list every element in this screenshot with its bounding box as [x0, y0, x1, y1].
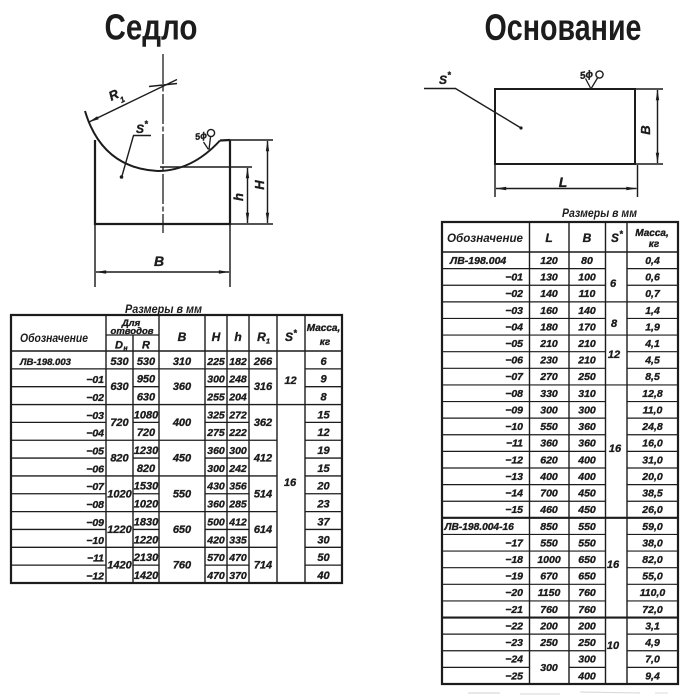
svg-text:200: 200 [539, 620, 558, 632]
svg-text:S: S [285, 330, 293, 344]
svg-text:230: 230 [539, 355, 558, 367]
svg-text:420: 420 [206, 534, 225, 546]
svg-text:400: 400 [577, 471, 596, 483]
svg-text:59,0: 59,0 [642, 521, 663, 533]
svg-text:−07: −07 [86, 481, 105, 493]
svg-text:R: R [142, 340, 150, 352]
svg-text:Масса,: Масса, [307, 323, 340, 334]
svg-text:19: 19 [317, 445, 330, 457]
svg-text:130: 130 [540, 272, 558, 284]
svg-text:310: 310 [173, 356, 192, 368]
svg-text:−22: −22 [505, 620, 523, 632]
svg-text:80: 80 [581, 255, 593, 267]
svg-text:430: 430 [206, 481, 225, 493]
svg-text:L: L [545, 231, 552, 245]
svg-text:−11: −11 [87, 553, 104, 565]
svg-text:−10: −10 [86, 535, 104, 547]
svg-text:отводов: отводов [111, 326, 154, 337]
svg-text:12: 12 [608, 349, 620, 361]
svg-text:650: 650 [578, 571, 596, 583]
svg-text:370: 370 [229, 570, 247, 582]
svg-text:300: 300 [578, 654, 596, 666]
svg-text:530: 530 [137, 356, 156, 368]
svg-text:360: 360 [207, 445, 225, 457]
svg-text:12: 12 [317, 427, 329, 439]
svg-text:−12: −12 [86, 570, 104, 582]
svg-text:8: 8 [320, 391, 327, 403]
svg-text:500: 500 [207, 516, 225, 528]
svg-text:12: 12 [284, 375, 296, 387]
svg-text:0,7: 0,7 [645, 288, 661, 300]
svg-text:760: 760 [578, 604, 596, 616]
svg-text:250: 250 [577, 637, 596, 649]
svg-text:16: 16 [609, 443, 622, 455]
svg-text:360: 360 [578, 421, 596, 433]
svg-text:530: 530 [110, 356, 129, 368]
svg-text:31,0: 31,0 [642, 454, 663, 466]
svg-text:R: R [257, 330, 266, 344]
svg-text:325: 325 [207, 409, 225, 421]
svg-text:720: 720 [110, 417, 129, 429]
svg-text:−03: −03 [86, 410, 104, 422]
svg-text:37: 37 [317, 516, 330, 528]
svg-text:−15: −15 [505, 504, 523, 516]
svg-text:−07: −07 [505, 371, 524, 383]
svg-text:Обозначение: Обозначение [447, 233, 524, 245]
svg-text:120: 120 [540, 255, 558, 267]
svg-text:3,1: 3,1 [645, 620, 660, 632]
svg-text:−23: −23 [505, 637, 523, 649]
svg-text:−25: −25 [505, 670, 523, 682]
svg-text:210: 210 [577, 338, 596, 350]
svg-text:H: H [252, 180, 267, 190]
svg-text:Обозначение: Обозначение [20, 333, 89, 345]
svg-text:820: 820 [110, 453, 129, 465]
svg-text:300: 300 [207, 374, 225, 386]
svg-text:7,0: 7,0 [645, 654, 660, 666]
svg-text:760: 760 [540, 604, 558, 616]
svg-text:−04: −04 [86, 428, 104, 440]
svg-text:412: 412 [228, 516, 247, 528]
svg-text:кг: кг [649, 239, 660, 250]
svg-text:550: 550 [578, 521, 596, 533]
svg-text:8: 8 [611, 318, 618, 330]
svg-text:316: 316 [254, 381, 273, 393]
svg-text:820: 820 [137, 463, 156, 475]
svg-text:S: S [439, 73, 447, 87]
svg-text:−01: −01 [86, 374, 104, 386]
svg-text:1020: 1020 [134, 499, 159, 511]
svg-text:5ϕ: 5ϕ [194, 130, 208, 142]
svg-text:h: h [231, 193, 246, 201]
svg-text:1830: 1830 [134, 516, 159, 528]
svg-text:412: 412 [253, 453, 272, 465]
svg-text:1: 1 [266, 337, 270, 346]
svg-text:20,0: 20,0 [641, 471, 663, 483]
svg-text:400: 400 [539, 471, 558, 483]
svg-text:620: 620 [540, 454, 558, 466]
svg-text:−02: −02 [86, 392, 104, 404]
svg-text:550: 550 [173, 488, 192, 500]
svg-text:356: 356 [229, 481, 247, 493]
svg-text:760: 760 [173, 560, 192, 572]
svg-text:ЛВ-198.003: ЛВ-198.003 [19, 357, 72, 368]
svg-text:850: 850 [540, 521, 558, 533]
svg-text:1000: 1000 [537, 554, 561, 566]
svg-text:B: B [154, 253, 164, 269]
svg-text:204: 204 [228, 391, 247, 403]
svg-text:160: 160 [540, 305, 558, 317]
svg-text:L: L [559, 174, 568, 190]
svg-text:30: 30 [317, 534, 330, 546]
svg-text:266: 266 [253, 356, 273, 368]
svg-text:360: 360 [540, 438, 558, 450]
svg-text:*: * [293, 328, 297, 338]
svg-text:200: 200 [577, 620, 596, 632]
svg-text:650: 650 [173, 524, 192, 536]
svg-text:6: 6 [320, 356, 327, 368]
svg-text:2130: 2130 [133, 552, 159, 564]
svg-text:−14: −14 [505, 488, 523, 500]
svg-text:4,9: 4,9 [644, 637, 660, 649]
svg-text:360: 360 [173, 381, 192, 393]
svg-text:300: 300 [540, 404, 558, 416]
svg-text:24,8: 24,8 [641, 421, 663, 433]
svg-text:760: 760 [578, 587, 596, 599]
svg-text:300: 300 [578, 404, 596, 416]
svg-text:310: 310 [578, 388, 596, 400]
svg-text:450: 450 [577, 504, 596, 516]
svg-text:362: 362 [254, 417, 272, 429]
svg-text:1230: 1230 [134, 445, 159, 457]
svg-text:270: 270 [539, 371, 558, 383]
svg-text:1220: 1220 [107, 524, 132, 536]
svg-text:1150: 1150 [538, 587, 561, 599]
svg-text:15: 15 [317, 463, 330, 475]
svg-text:470: 470 [206, 570, 225, 582]
svg-text:110,0: 110,0 [640, 587, 666, 599]
svg-text:Седло: Седло [105, 7, 198, 48]
svg-text:ЛВ-198.004-16: ЛВ-198.004-16 [444, 522, 515, 533]
svg-text:82,0: 82,0 [642, 554, 663, 566]
svg-text:*: * [447, 70, 451, 80]
svg-text:1,4: 1,4 [645, 305, 660, 317]
svg-text:140: 140 [540, 288, 558, 300]
svg-text:−21: −21 [505, 604, 523, 616]
svg-text:B: B [178, 330, 187, 344]
svg-text:630: 630 [137, 391, 156, 403]
svg-text:B: B [583, 231, 592, 245]
svg-text:550: 550 [578, 537, 596, 549]
svg-text:272: 272 [228, 409, 247, 421]
svg-text:450: 450 [172, 453, 192, 465]
svg-text:1420: 1420 [107, 560, 132, 572]
svg-text:−11: −11 [506, 438, 523, 450]
svg-text:222: 222 [228, 427, 247, 439]
svg-text:248: 248 [228, 374, 247, 386]
svg-text:кг: кг [320, 337, 331, 348]
svg-text:−08: −08 [86, 499, 104, 511]
svg-text:950: 950 [137, 374, 156, 386]
svg-text:450: 450 [577, 488, 596, 500]
svg-text:300: 300 [207, 463, 225, 475]
svg-text:20: 20 [316, 481, 330, 493]
svg-text:360: 360 [578, 438, 596, 450]
svg-text:16: 16 [607, 559, 620, 571]
svg-text:−20: −20 [505, 587, 523, 599]
svg-text:−03: −03 [505, 305, 523, 317]
svg-text:400: 400 [172, 417, 192, 429]
svg-text:670: 670 [540, 571, 558, 583]
svg-text:330: 330 [540, 388, 558, 400]
svg-text:0,6: 0,6 [645, 272, 660, 284]
svg-text:−24: −24 [505, 654, 523, 666]
svg-text:−05: −05 [505, 338, 523, 350]
svg-text:*: * [619, 229, 623, 239]
svg-text:*: * [144, 119, 148, 129]
svg-text:15: 15 [317, 409, 330, 421]
svg-text:Масса,: Масса, [635, 228, 668, 239]
svg-text:6: 6 [610, 278, 617, 290]
svg-text:1020: 1020 [107, 488, 132, 500]
svg-text:0,4: 0,4 [645, 255, 660, 267]
svg-text:−18: −18 [505, 554, 523, 566]
svg-text:4,1: 4,1 [644, 338, 660, 350]
svg-text:B: B [638, 125, 653, 134]
svg-text:12,8: 12,8 [642, 388, 663, 400]
svg-text:9,4: 9,4 [645, 670, 660, 682]
svg-text:−08: −08 [505, 388, 523, 400]
svg-text:−10: −10 [505, 421, 523, 433]
svg-text:182: 182 [229, 356, 247, 368]
svg-text:1080: 1080 [134, 409, 159, 421]
svg-text:−09: −09 [86, 517, 104, 529]
svg-text:S: S [611, 233, 619, 245]
svg-text:26,0: 26,0 [641, 504, 663, 516]
svg-text:−01: −01 [505, 272, 523, 284]
svg-text:714: 714 [254, 560, 272, 572]
svg-text:110: 110 [579, 288, 596, 300]
svg-text:242: 242 [228, 463, 247, 475]
svg-text:300: 300 [540, 662, 558, 674]
svg-text:40: 40 [316, 570, 330, 582]
svg-text:550: 550 [540, 421, 558, 433]
svg-text:50: 50 [317, 552, 330, 564]
svg-text:72,0: 72,0 [642, 604, 663, 616]
svg-text:335: 335 [229, 534, 247, 546]
svg-text:−12: −12 [505, 454, 523, 466]
svg-text:514: 514 [254, 488, 272, 500]
svg-text:−13: −13 [505, 471, 523, 483]
svg-text:360: 360 [207, 499, 225, 511]
svg-text:400: 400 [577, 670, 596, 682]
svg-text:−09: −09 [505, 404, 523, 416]
svg-text:4,5: 4,5 [644, 355, 660, 367]
svg-text:38,0: 38,0 [642, 537, 663, 549]
svg-text:Размеры в мм: Размеры в мм [562, 206, 637, 220]
svg-text:1220: 1220 [134, 534, 159, 546]
svg-text:55,0: 55,0 [642, 571, 663, 583]
svg-text:−04: −04 [505, 321, 523, 333]
svg-text:D: D [115, 340, 123, 352]
svg-text:−05: −05 [86, 446, 104, 458]
svg-text:225: 225 [206, 356, 225, 368]
svg-text:275: 275 [206, 427, 225, 439]
svg-text:16: 16 [284, 477, 297, 489]
svg-text:1530: 1530 [134, 481, 159, 493]
svg-text:S: S [136, 122, 144, 136]
svg-text:400: 400 [577, 454, 596, 466]
svg-text:140: 140 [578, 305, 596, 317]
svg-text:614: 614 [254, 524, 272, 536]
svg-text:210: 210 [577, 355, 596, 367]
svg-text:1420: 1420 [134, 570, 159, 582]
svg-text:1,9: 1,9 [645, 321, 660, 333]
svg-text:H: H [212, 330, 221, 344]
svg-text:h: h [234, 330, 241, 344]
svg-text:11,0: 11,0 [643, 404, 663, 416]
svg-text:38,5: 38,5 [642, 488, 663, 500]
svg-text:−17: −17 [505, 537, 524, 549]
svg-text:250: 250 [539, 637, 558, 649]
svg-text:−19: −19 [505, 571, 523, 583]
svg-text:10: 10 [607, 640, 620, 652]
svg-text:470: 470 [228, 552, 247, 564]
svg-text:255: 255 [206, 391, 225, 403]
svg-text:8,5: 8,5 [645, 371, 660, 383]
svg-text:170: 170 [578, 321, 596, 333]
svg-text:250: 250 [577, 371, 596, 383]
svg-text:23: 23 [316, 499, 329, 511]
svg-text:9: 9 [320, 374, 327, 386]
svg-text:ЛВ-198.004: ЛВ-198.004 [449, 255, 506, 267]
svg-text:16,0: 16,0 [642, 438, 663, 450]
svg-text:285: 285 [228, 499, 247, 511]
svg-text:700: 700 [540, 488, 558, 500]
svg-text:570: 570 [207, 552, 225, 564]
svg-text:630: 630 [110, 381, 129, 393]
svg-text:−02: −02 [505, 288, 523, 300]
svg-text:−06: −06 [86, 463, 104, 475]
svg-text:180: 180 [540, 321, 558, 333]
svg-text:720: 720 [137, 427, 156, 439]
svg-text:210: 210 [539, 338, 558, 350]
svg-text:100: 100 [578, 272, 596, 284]
svg-text:550: 550 [540, 537, 558, 549]
svg-text:300: 300 [229, 445, 247, 457]
svg-text:650: 650 [578, 554, 596, 566]
svg-text:460: 460 [539, 504, 558, 516]
svg-text:Основание: Основание [485, 7, 642, 48]
svg-text:−06: −06 [505, 355, 523, 367]
